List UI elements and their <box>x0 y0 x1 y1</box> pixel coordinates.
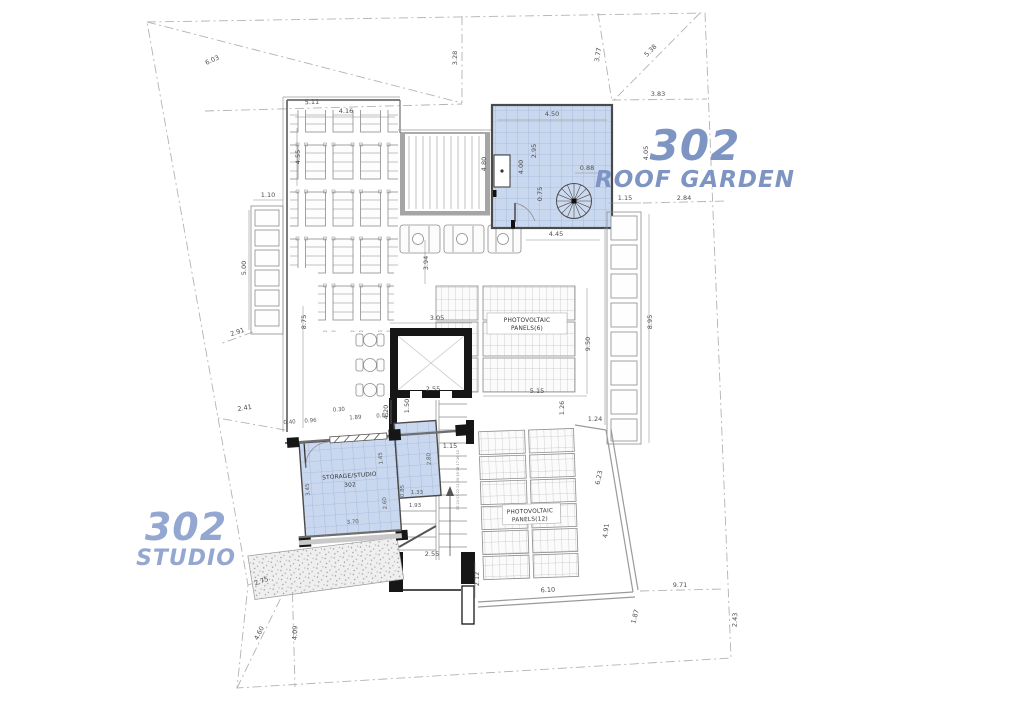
dim-label: 1.15 <box>618 194 632 202</box>
studio-title-name: STUDIO <box>136 546 236 571</box>
planter-right <box>607 212 641 444</box>
dim-label: 2.55 <box>425 550 439 558</box>
dim-label: 1.33 <box>411 490 424 496</box>
pv-upper-label-line1: PHOTOVOLTAIC <box>504 318 551 324</box>
dim-label: 1.87 <box>629 608 640 624</box>
dim-label: 4.50 <box>545 110 559 118</box>
dim-label: 3.45 <box>305 483 312 496</box>
dim-label: 2.95 <box>530 144 538 158</box>
dim-label: 3.70 <box>346 519 359 526</box>
dim-label: 0.30 <box>333 407 346 414</box>
studio-block: STORAGE/STUDIO 302 0.40 0.96 0.30 1.89 0… <box>238 398 478 599</box>
dim-label: 4.20 <box>382 405 390 419</box>
dim-label: 5.00 <box>240 261 248 275</box>
dim-label: 4.09 <box>291 625 300 640</box>
dim-label: 2.43 <box>731 612 740 627</box>
dim-label: 3.77 <box>593 47 603 63</box>
dim-label: 2.55 <box>426 385 440 393</box>
dim-label: 9.50 <box>584 337 592 351</box>
dim-label: 2.84 <box>677 194 691 202</box>
dim-label: 3.83 <box>651 90 665 98</box>
dim-label: 4.16 <box>339 107 353 115</box>
dim-label: 9.71 <box>673 581 687 589</box>
studio-title-number: 302 <box>145 505 227 549</box>
terrace-tables <box>356 334 384 397</box>
dim-label: 1.89 <box>349 415 362 422</box>
dim-label: 5.11 <box>305 98 320 107</box>
dim-label: 4.45 <box>549 230 563 238</box>
dim-label: 1.45 <box>378 452 385 465</box>
pergola-deck <box>398 130 492 216</box>
pv-array-lower <box>479 428 579 579</box>
dim-label: 2.91 <box>229 326 245 338</box>
dim-label: 6.10 <box>540 586 555 595</box>
dim-label: 8.75 <box>300 315 308 329</box>
dim-label: 0.96 <box>304 418 317 425</box>
pv-upper-label-line2: PANELS(6) <box>511 326 543 332</box>
dim-label: 2.12 <box>473 572 481 586</box>
dim-label: 5.15 <box>530 387 544 395</box>
dim-label: 1.93 <box>409 503 422 509</box>
dim-label: 1.26 <box>558 401 566 415</box>
gravel-area <box>247 537 404 600</box>
spiral-staircase <box>557 184 592 219</box>
dim-label: 4.80 <box>480 157 488 171</box>
dim-label: 6.03 <box>204 54 220 67</box>
dim-label: 1.50 <box>403 399 411 413</box>
dim-label: 4.55 <box>294 150 302 164</box>
dim-label: 0.75 <box>536 187 544 201</box>
storage-studio-number: 302 <box>344 482 356 489</box>
floor-plan-canvas: 25·24·23·22·21·20·19·18·17·16·15 <box>0 0 1025 706</box>
dim-label: 3.05 <box>430 314 444 322</box>
dim-label: 2.60 <box>382 496 389 509</box>
floor-plan-drawing: 25·24·23·22·21·20·19·18·17·16·15 <box>0 0 1025 706</box>
dim-label: 0.40 <box>283 419 296 426</box>
dim-label: 2.80 <box>426 452 433 465</box>
planter-left <box>251 206 283 334</box>
dim-label: 6.23 <box>594 470 605 486</box>
roof-garden-title-name: ROOF GARDEN <box>595 167 795 193</box>
dim-label: 4.91 <box>601 523 611 538</box>
dim-label: 1.24 <box>588 415 602 423</box>
dim-label: 5.38 <box>643 43 659 59</box>
dim-label: 1.15 <box>443 442 457 450</box>
stair-step-numbers: 25·24·23·22·21·20·19·18·17·16·15 <box>456 450 460 510</box>
dim-label: 8.95 <box>646 315 654 329</box>
dim-label: 1.10 <box>261 191 275 199</box>
pv-lower-label-line2: PANELS(12) <box>512 516 548 523</box>
planter-units-row <box>400 225 521 253</box>
dim-label: 4.00 <box>517 160 525 174</box>
dim-label: 2.41 <box>237 403 253 413</box>
dim-label: 3.28 <box>451 51 459 65</box>
roof-garden-title-number: 302 <box>650 121 741 170</box>
dim-label: 0.85 <box>400 484 406 497</box>
dim-label: 0.88 <box>580 164 594 172</box>
sun-loungers <box>290 110 398 332</box>
dim-label: 3.94 <box>422 256 430 270</box>
